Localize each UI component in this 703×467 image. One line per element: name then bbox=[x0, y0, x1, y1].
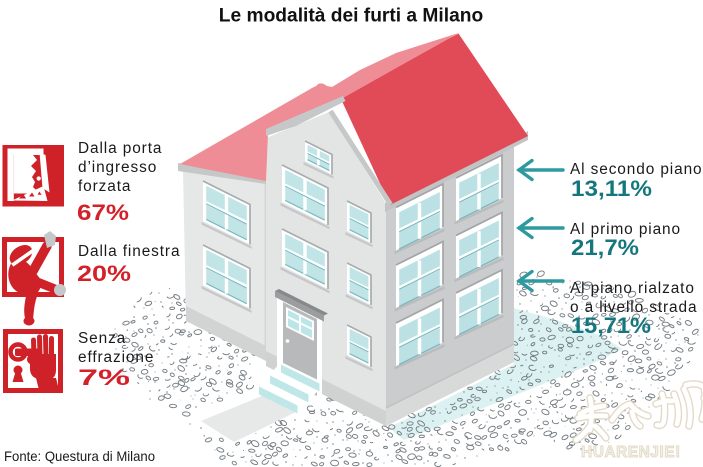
svg-text:67%: 67% bbox=[77, 200, 129, 225]
svg-text:13,11%: 13,11% bbox=[571, 176, 652, 201]
svg-text:7%: 7% bbox=[78, 365, 130, 390]
svg-text:Le modalità dei furti a Milano: Le modalità dei furti a Milano bbox=[219, 6, 483, 27]
svg-text:Dalla finestra: Dalla finestra bbox=[78, 243, 180, 260]
svg-text:20%: 20% bbox=[77, 261, 131, 286]
svg-text:Fonte: Questura di Milano: Fonte: Questura di Milano bbox=[4, 449, 155, 464]
svg-text:21,7%: 21,7% bbox=[571, 235, 639, 260]
svg-text:forzata: forzata bbox=[78, 178, 131, 195]
svg-text:effrazione: effrazione bbox=[78, 349, 154, 366]
svg-text:HUARENJIE!: HUARENJIE! bbox=[581, 444, 681, 461]
svg-text:Dalla porta: Dalla porta bbox=[78, 140, 162, 157]
svg-text:15,71%: 15,71% bbox=[571, 313, 651, 338]
svg-text:Senza: Senza bbox=[78, 330, 126, 347]
svg-text:d’ingresso: d’ingresso bbox=[78, 159, 157, 176]
svg-text:Al piano rialzato: Al piano rialzato bbox=[570, 280, 695, 297]
